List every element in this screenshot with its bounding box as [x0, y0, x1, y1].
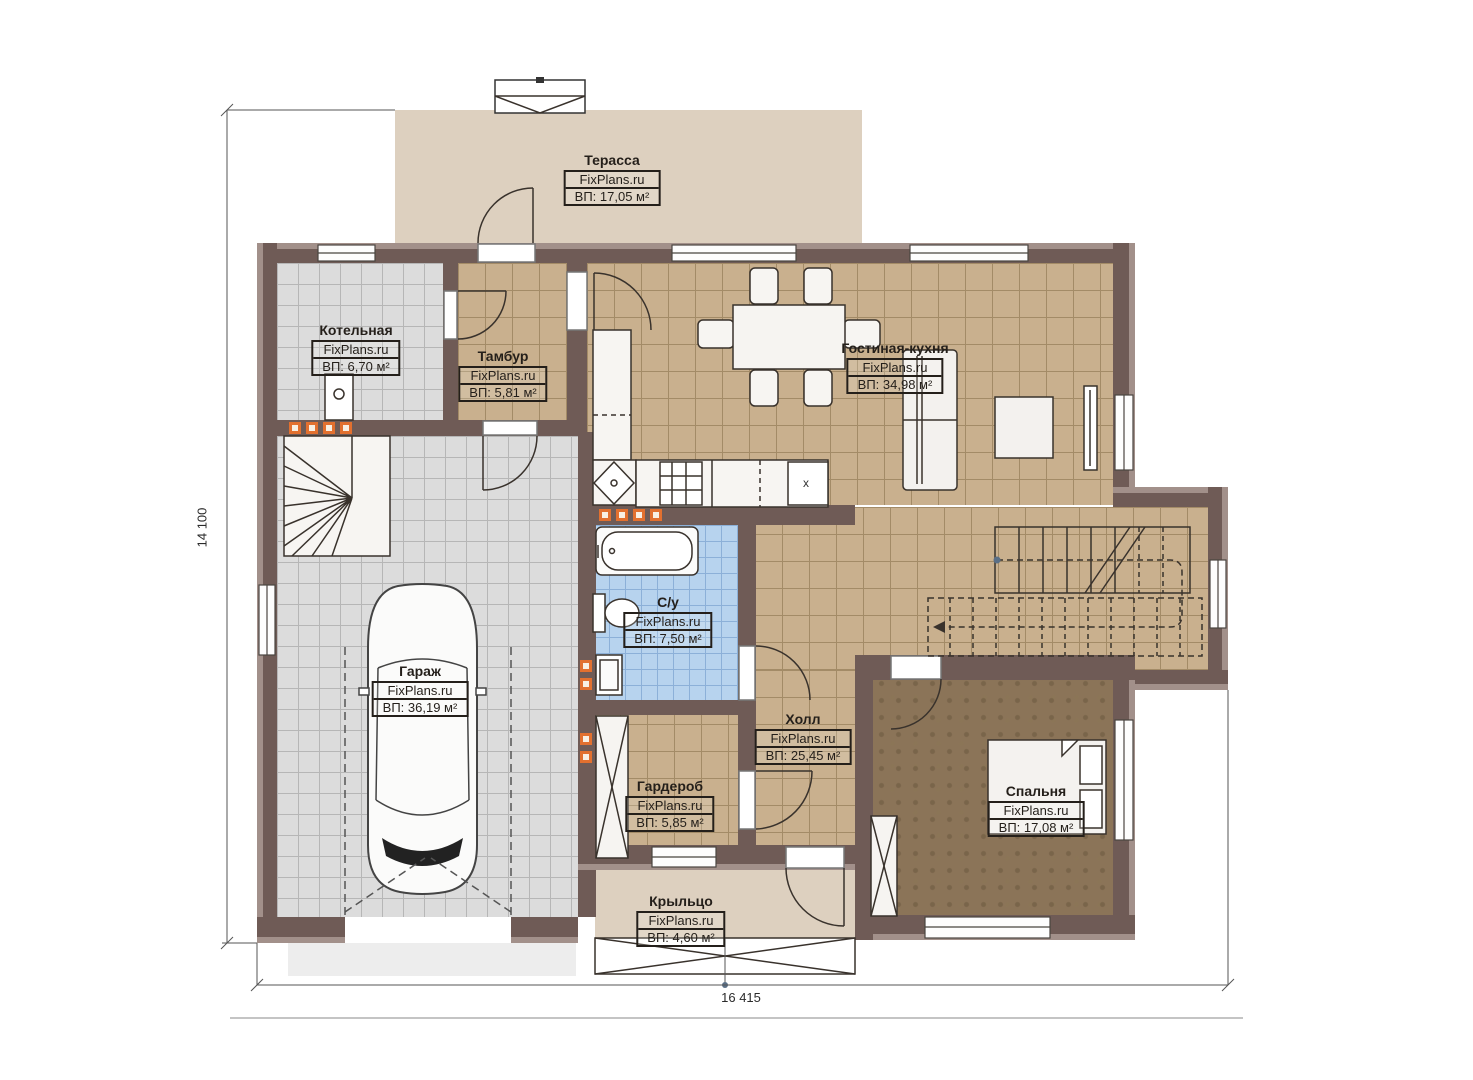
watermark-link[interactable]: FixPlans.ru — [627, 798, 712, 815]
chimney-symbol — [495, 77, 585, 113]
watermark-link[interactable]: FixPlans.ru — [849, 360, 942, 377]
room-label-vestibule: Тамбур FixPlans.ru ВП: 5,81 м² — [458, 348, 547, 402]
room-area: ВП: 7,50 м² — [625, 631, 710, 646]
room-label-bathroom: С/у FixPlans.ru ВП: 7,50 м² — [623, 594, 712, 648]
radiator-icon — [616, 509, 628, 521]
watermark-link[interactable]: FixPlans.ru — [566, 172, 659, 189]
room-label-bedroom: Спальня FixPlans.ru ВП: 17,08 м² — [988, 783, 1085, 837]
wall-vestibule-kitchen — [567, 263, 587, 436]
room-name: Крыльцо — [636, 893, 725, 909]
wall-wardrobe-east — [738, 715, 756, 855]
watermark-link[interactable]: FixPlans.ru — [460, 368, 545, 385]
wall-bathroom-south — [593, 700, 756, 715]
floorplan-canvas: x Терасса FixPlans.ru ВП: 17,05 м² Котел… — [0, 0, 1473, 1080]
watermark-link[interactable]: FixPlans.ru — [625, 614, 710, 631]
wall-east-upper — [1113, 243, 1135, 507]
room-area: ВП: 36,19 м² — [374, 700, 467, 715]
room-label-living-kitchen: Гостиная-кухня FixPlans.ru ВП: 34,98 м² — [841, 340, 948, 394]
wall-garage-south-left — [257, 917, 345, 943]
radiator-icon — [323, 422, 335, 434]
radiator-icon — [289, 422, 301, 434]
room-name: Гостиная-кухня — [841, 340, 948, 356]
room-label-wardrobe: Гардероб FixPlans.ru ВП: 5,85 м² — [625, 778, 714, 832]
radiator-icon — [633, 509, 645, 521]
radiator-icon — [580, 751, 592, 763]
wall-stairbay-right — [1208, 487, 1228, 690]
wall-bedroom-south — [855, 915, 1135, 940]
radiator-icon — [580, 678, 592, 690]
radiator-icon — [650, 509, 662, 521]
room-area: ВП: 5,81 м² — [460, 385, 545, 400]
room-area: ВП: 25,45 м² — [757, 748, 850, 763]
room-area: ВП: 17,05 м² — [566, 189, 659, 204]
wall-boiler-vestibule — [443, 263, 458, 436]
room-area: ВП: 5,85 м² — [627, 815, 712, 830]
watermark-link[interactable]: FixPlans.ru — [757, 731, 850, 748]
room-area: ВП: 6,70 м² — [313, 359, 398, 374]
wall-west — [257, 243, 277, 943]
watermark-link[interactable]: FixPlans.ru — [374, 683, 467, 700]
watermark-link[interactable]: FixPlans.ru — [638, 913, 723, 930]
room-name: Холл — [755, 711, 852, 727]
room-name: С/у — [623, 594, 712, 610]
room-label-porch: Крыльцо FixPlans.ru ВП: 4,60 м² — [636, 893, 725, 947]
room-area: ВП: 34,98 м² — [849, 377, 942, 392]
radiator-icon — [580, 660, 592, 672]
radiator-icon — [306, 422, 318, 434]
room-name: Спальня — [988, 783, 1085, 799]
room-label-terrace: Терасса FixPlans.ru ВП: 17,05 м² — [564, 152, 661, 206]
watermark-link[interactable]: FixPlans.ru — [990, 803, 1083, 820]
wall-garage-south-right — [511, 917, 578, 943]
room-name: Котельная — [311, 322, 400, 338]
radiator-icon — [599, 509, 611, 521]
wall-bedroom-north — [855, 655, 1135, 680]
dimension-width: 16 415 — [721, 990, 761, 1005]
room-label-boiler: Котельная FixPlans.ru ВП: 6,70 м² — [311, 322, 400, 376]
room-label-garage: Гараж FixPlans.ru ВП: 36,19 м² — [372, 663, 469, 717]
kitchen-unit-marker: x — [803, 476, 809, 490]
room-name: Гараж — [372, 663, 469, 679]
room-name: Терасса — [564, 152, 661, 168]
radiator-icon — [340, 422, 352, 434]
room-label-hall: Холл FixPlans.ru ВП: 25,45 м² — [755, 711, 852, 765]
room-area: ВП: 4,60 м² — [638, 930, 723, 945]
wall-bedroom-west — [855, 655, 873, 940]
driveway-apron — [288, 943, 576, 976]
wall-bathroom-east — [738, 525, 756, 715]
room-area: ВП: 17,08 м² — [990, 820, 1083, 835]
dimension-height: 14 100 — [194, 508, 209, 548]
wall-south-center — [578, 845, 855, 870]
room-name: Тамбур — [458, 348, 547, 364]
wall-bedroom-east — [1113, 655, 1135, 940]
wall-north — [257, 243, 1135, 263]
watermark-link[interactable]: FixPlans.ru — [313, 342, 398, 359]
radiator-icon — [580, 733, 592, 745]
room-name: Гардероб — [625, 778, 714, 794]
